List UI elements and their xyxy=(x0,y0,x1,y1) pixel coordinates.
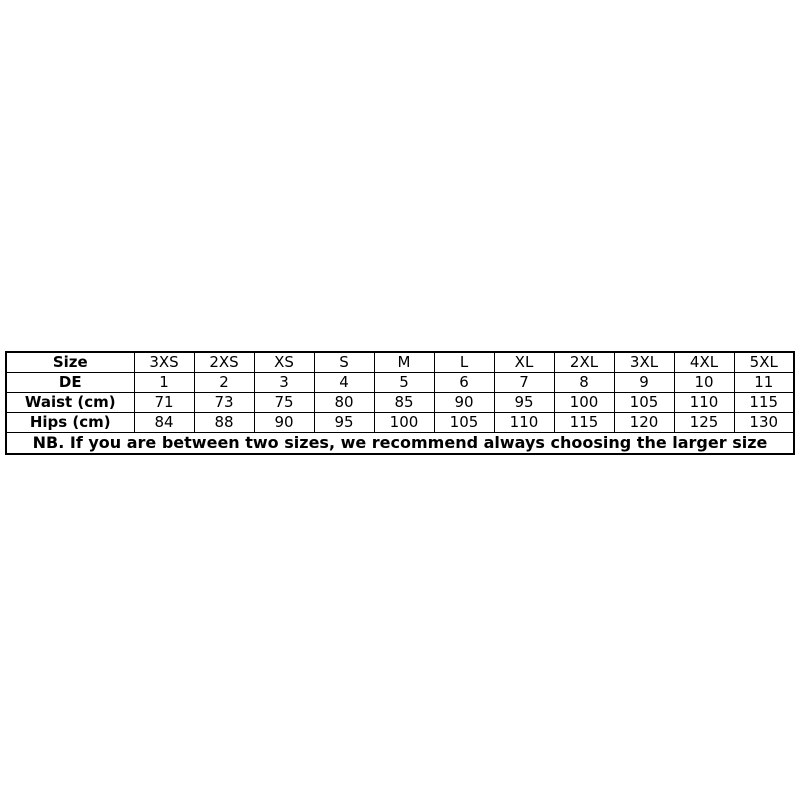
row-label-waist: Waist (cm) xyxy=(6,393,134,413)
de-cell: 8 xyxy=(554,373,614,393)
waist-cell: 115 xyxy=(734,393,794,413)
de-cell: 9 xyxy=(614,373,674,393)
table-row-note: NB. If you are between two sizes, we rec… xyxy=(6,433,794,455)
size-cell: 3XL xyxy=(614,352,674,373)
de-cell: 5 xyxy=(374,373,434,393)
hips-cell: 105 xyxy=(434,413,494,433)
size-cell: M xyxy=(374,352,434,373)
size-cell: 4XL xyxy=(674,352,734,373)
hips-cell: 110 xyxy=(494,413,554,433)
row-label-de: DE xyxy=(6,373,134,393)
size-chart-table: Size 3XS 2XS XS S M L XL 2XL 3XL 4XL 5XL… xyxy=(5,351,795,455)
waist-cell: 75 xyxy=(254,393,314,413)
hips-cell: 88 xyxy=(194,413,254,433)
hips-cell: 115 xyxy=(554,413,614,433)
waist-cell: 73 xyxy=(194,393,254,413)
hips-cell: 125 xyxy=(674,413,734,433)
row-label-hips: Hips (cm) xyxy=(6,413,134,433)
size-cell: XL xyxy=(494,352,554,373)
de-cell: 7 xyxy=(494,373,554,393)
size-cell: 2XL xyxy=(554,352,614,373)
table-row-waist: Waist (cm) 71 73 75 80 85 90 95 100 105 … xyxy=(6,393,794,413)
size-cell: XS xyxy=(254,352,314,373)
table-row-de: DE 1 2 3 4 5 6 7 8 9 10 11 xyxy=(6,373,794,393)
de-cell: 1 xyxy=(134,373,194,393)
hips-cell: 130 xyxy=(734,413,794,433)
waist-cell: 100 xyxy=(554,393,614,413)
de-cell: 3 xyxy=(254,373,314,393)
size-cell: 5XL xyxy=(734,352,794,373)
de-cell: 4 xyxy=(314,373,374,393)
de-cell: 2 xyxy=(194,373,254,393)
waist-cell: 105 xyxy=(614,393,674,413)
table-row-size: Size 3XS 2XS XS S M L XL 2XL 3XL 4XL 5XL xyxy=(6,352,794,373)
row-label-size: Size xyxy=(6,352,134,373)
hips-cell: 120 xyxy=(614,413,674,433)
waist-cell: 90 xyxy=(434,393,494,413)
hips-cell: 90 xyxy=(254,413,314,433)
hips-cell: 84 xyxy=(134,413,194,433)
waist-cell: 110 xyxy=(674,393,734,413)
table-row-hips: Hips (cm) 84 88 90 95 100 105 110 115 12… xyxy=(6,413,794,433)
size-cell: 3XS xyxy=(134,352,194,373)
hips-cell: 100 xyxy=(374,413,434,433)
size-cell: L xyxy=(434,352,494,373)
hips-cell: 95 xyxy=(314,413,374,433)
waist-cell: 95 xyxy=(494,393,554,413)
size-chart-image: Size 3XS 2XS XS S M L XL 2XL 3XL 4XL 5XL… xyxy=(0,0,800,800)
size-cell: S xyxy=(314,352,374,373)
de-cell: 10 xyxy=(674,373,734,393)
note-text: NB. If you are between two sizes, we rec… xyxy=(6,433,794,455)
waist-cell: 80 xyxy=(314,393,374,413)
size-cell: 2XS xyxy=(194,352,254,373)
de-cell: 6 xyxy=(434,373,494,393)
waist-cell: 71 xyxy=(134,393,194,413)
de-cell: 11 xyxy=(734,373,794,393)
waist-cell: 85 xyxy=(374,393,434,413)
